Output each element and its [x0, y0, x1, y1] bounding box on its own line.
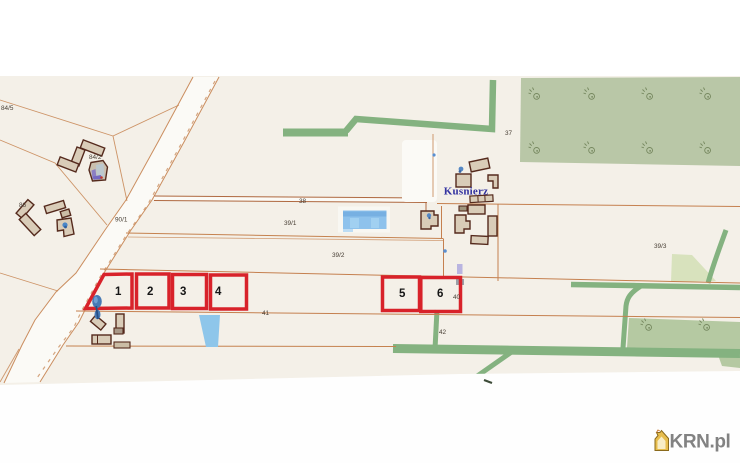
svg-text:90/1: 90/1: [115, 217, 128, 224]
svg-text:42: 42: [439, 329, 447, 336]
svg-text:Kusnierz: Kusnierz: [444, 186, 488, 198]
svg-text:5: 5: [399, 288, 406, 300]
svg-text:39/2: 39/2: [332, 252, 345, 259]
svg-text:2: 2: [147, 286, 153, 298]
svg-text:3: 3: [180, 286, 186, 298]
svg-text:39/1: 39/1: [284, 220, 297, 227]
svg-text:KRN.pl: KRN.pl: [670, 432, 731, 453]
svg-text:84/2: 84/2: [89, 154, 102, 161]
svg-text:38: 38: [299, 198, 307, 205]
svg-text:37: 37: [505, 130, 513, 137]
svg-text:1: 1: [115, 286, 122, 298]
svg-text:6: 6: [437, 288, 443, 300]
svg-text:4: 4: [215, 286, 222, 298]
svg-text:84/5: 84/5: [1, 105, 14, 112]
svg-text:41: 41: [262, 310, 270, 317]
svg-text:39/3: 39/3: [654, 243, 667, 250]
svg-text:40: 40: [453, 294, 461, 301]
svg-text:86: 86: [19, 202, 27, 209]
